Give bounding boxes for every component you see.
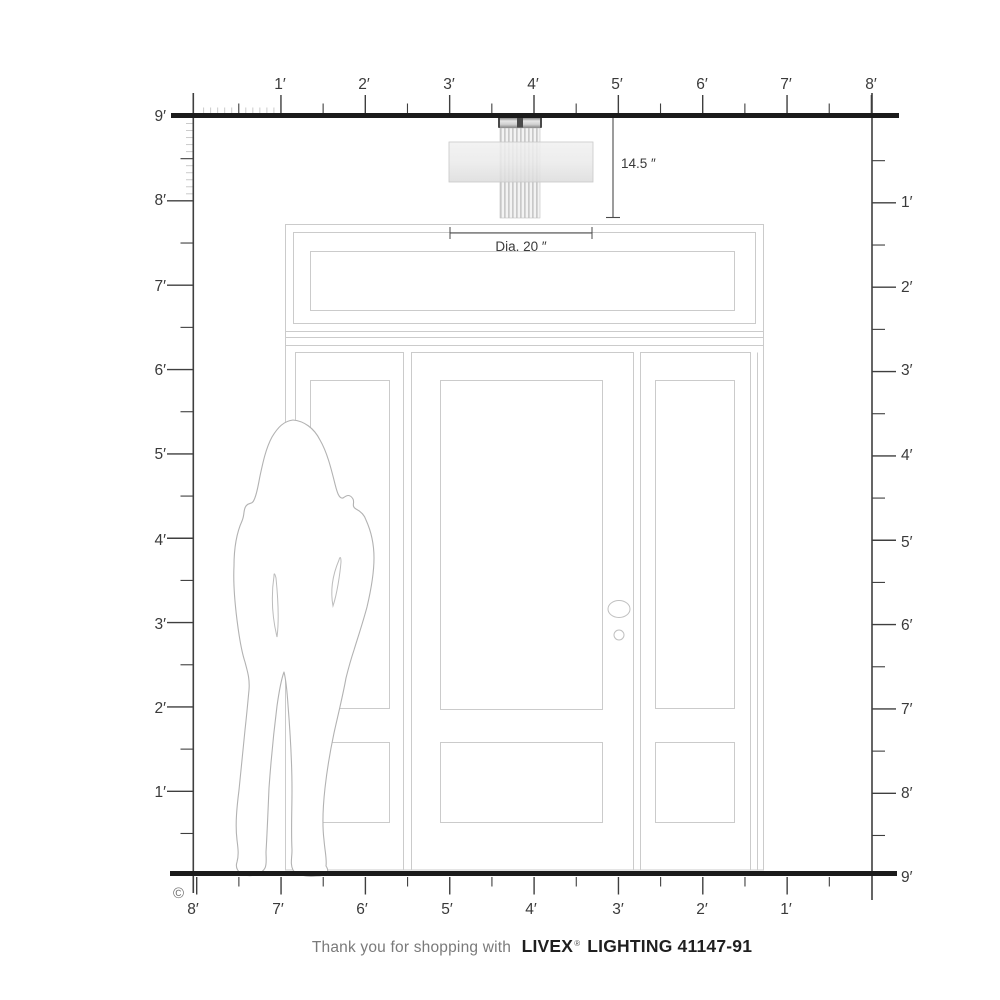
door-lock bbox=[614, 630, 624, 640]
fixture-height-label: 14.5 ″ bbox=[621, 156, 656, 171]
right-sidelite-upper-panel bbox=[656, 381, 735, 709]
left-ruler-label-1ft: 1′ bbox=[132, 784, 166, 802]
transom-glass-panel bbox=[311, 252, 735, 311]
footer: Thank you for shopping with LIVEX®LIGHTI… bbox=[64, 936, 1000, 957]
right-ruler-label-8ft: 8′ bbox=[901, 785, 913, 803]
bottom-ruler-label-7ft: 7′ bbox=[263, 901, 293, 919]
copyright-symbol: © bbox=[173, 885, 184, 902]
footer-brand-name: LIVEX bbox=[522, 936, 574, 956]
silhouette-outline bbox=[234, 420, 374, 876]
right-ruler-label-9ft: 9′ bbox=[901, 869, 913, 887]
left-ruler-label-4ft: 4′ bbox=[132, 532, 166, 550]
footer-product-number: LIGHTING 41147-91 bbox=[587, 936, 752, 956]
top-ruler-label-7ft: 7′ bbox=[771, 76, 801, 94]
fixture-canopy-right-cap bbox=[523, 118, 540, 128]
bottom-ruler-label-6ft: 6′ bbox=[347, 901, 377, 919]
top-ruler-label-8ft: 8′ bbox=[856, 76, 886, 94]
door-lower-panel bbox=[441, 743, 603, 823]
fixture-drum-band bbox=[449, 142, 593, 182]
left-ruler-label-3ft: 3′ bbox=[132, 616, 166, 634]
dimension-diagram-page: 1′ 2′ 3′ 4′ 5′ 6′ 7′ 8′ 9′ 8′ 7′ 6′ 5′ 4… bbox=[0, 0, 1000, 1000]
left-ruler-label-2ft: 2′ bbox=[132, 700, 166, 718]
right-ruler-label-5ft: 5′ bbox=[901, 534, 913, 552]
left-ruler-label-5ft: 5′ bbox=[132, 446, 166, 464]
bottom-ruler-label-8ft: 8′ bbox=[178, 901, 208, 919]
light-fixture bbox=[449, 117, 593, 218]
top-ruler-label-3ft: 3′ bbox=[434, 76, 464, 94]
door-leaf-frame bbox=[412, 353, 634, 871]
diagram-canvas bbox=[0, 0, 1000, 1000]
top-ruler-label-6ft: 6′ bbox=[687, 76, 717, 94]
left-ruler-label-7ft: 7′ bbox=[132, 278, 166, 296]
left-ruler-label-6ft: 6′ bbox=[132, 362, 166, 380]
right-ruler-label-1ft: 1′ bbox=[901, 194, 913, 212]
footer-thanks-text: Thank you for shopping with bbox=[312, 939, 511, 956]
left-ruler-label-9ft: 9′ bbox=[132, 108, 166, 126]
top-ruler-label-2ft: 2′ bbox=[349, 76, 379, 94]
right-ruler-label-7ft: 7′ bbox=[901, 701, 913, 719]
right-ruler-label-4ft: 4′ bbox=[901, 447, 913, 465]
bottom-ruler-label-5ft: 5′ bbox=[432, 901, 462, 919]
left-ruler-label-8ft: 8′ bbox=[132, 192, 166, 210]
bottom-ruler-label-3ft: 3′ bbox=[603, 901, 633, 919]
top-ruler-label-4ft: 4′ bbox=[518, 76, 548, 94]
door-upper-panel bbox=[441, 381, 603, 710]
right-ruler-label-6ft: 6′ bbox=[901, 617, 913, 635]
right-ruler-label-2ft: 2′ bbox=[901, 279, 913, 297]
bottom-ruler-label-1ft: 1′ bbox=[771, 901, 801, 919]
right-sidelite-lower-panel bbox=[656, 743, 735, 823]
fixture-canopy-left-cap bbox=[500, 118, 517, 128]
bottom-ruler-label-2ft: 2′ bbox=[687, 901, 717, 919]
right-ruler-label-3ft: 3′ bbox=[901, 362, 913, 380]
fixture-diameter-label: Dia. 20 ″ bbox=[471, 239, 571, 254]
top-ruler-label-1ft: 1′ bbox=[265, 76, 295, 94]
height-dimension-line bbox=[606, 118, 620, 218]
top-ruler-label-5ft: 5′ bbox=[602, 76, 632, 94]
diameter-dimension-line bbox=[450, 227, 592, 239]
human-scale-silhouette bbox=[234, 420, 374, 876]
door-knob bbox=[608, 601, 630, 618]
bottom-ruler-label-4ft: 4′ bbox=[516, 901, 546, 919]
registered-trademark-icon: ® bbox=[574, 939, 580, 948]
